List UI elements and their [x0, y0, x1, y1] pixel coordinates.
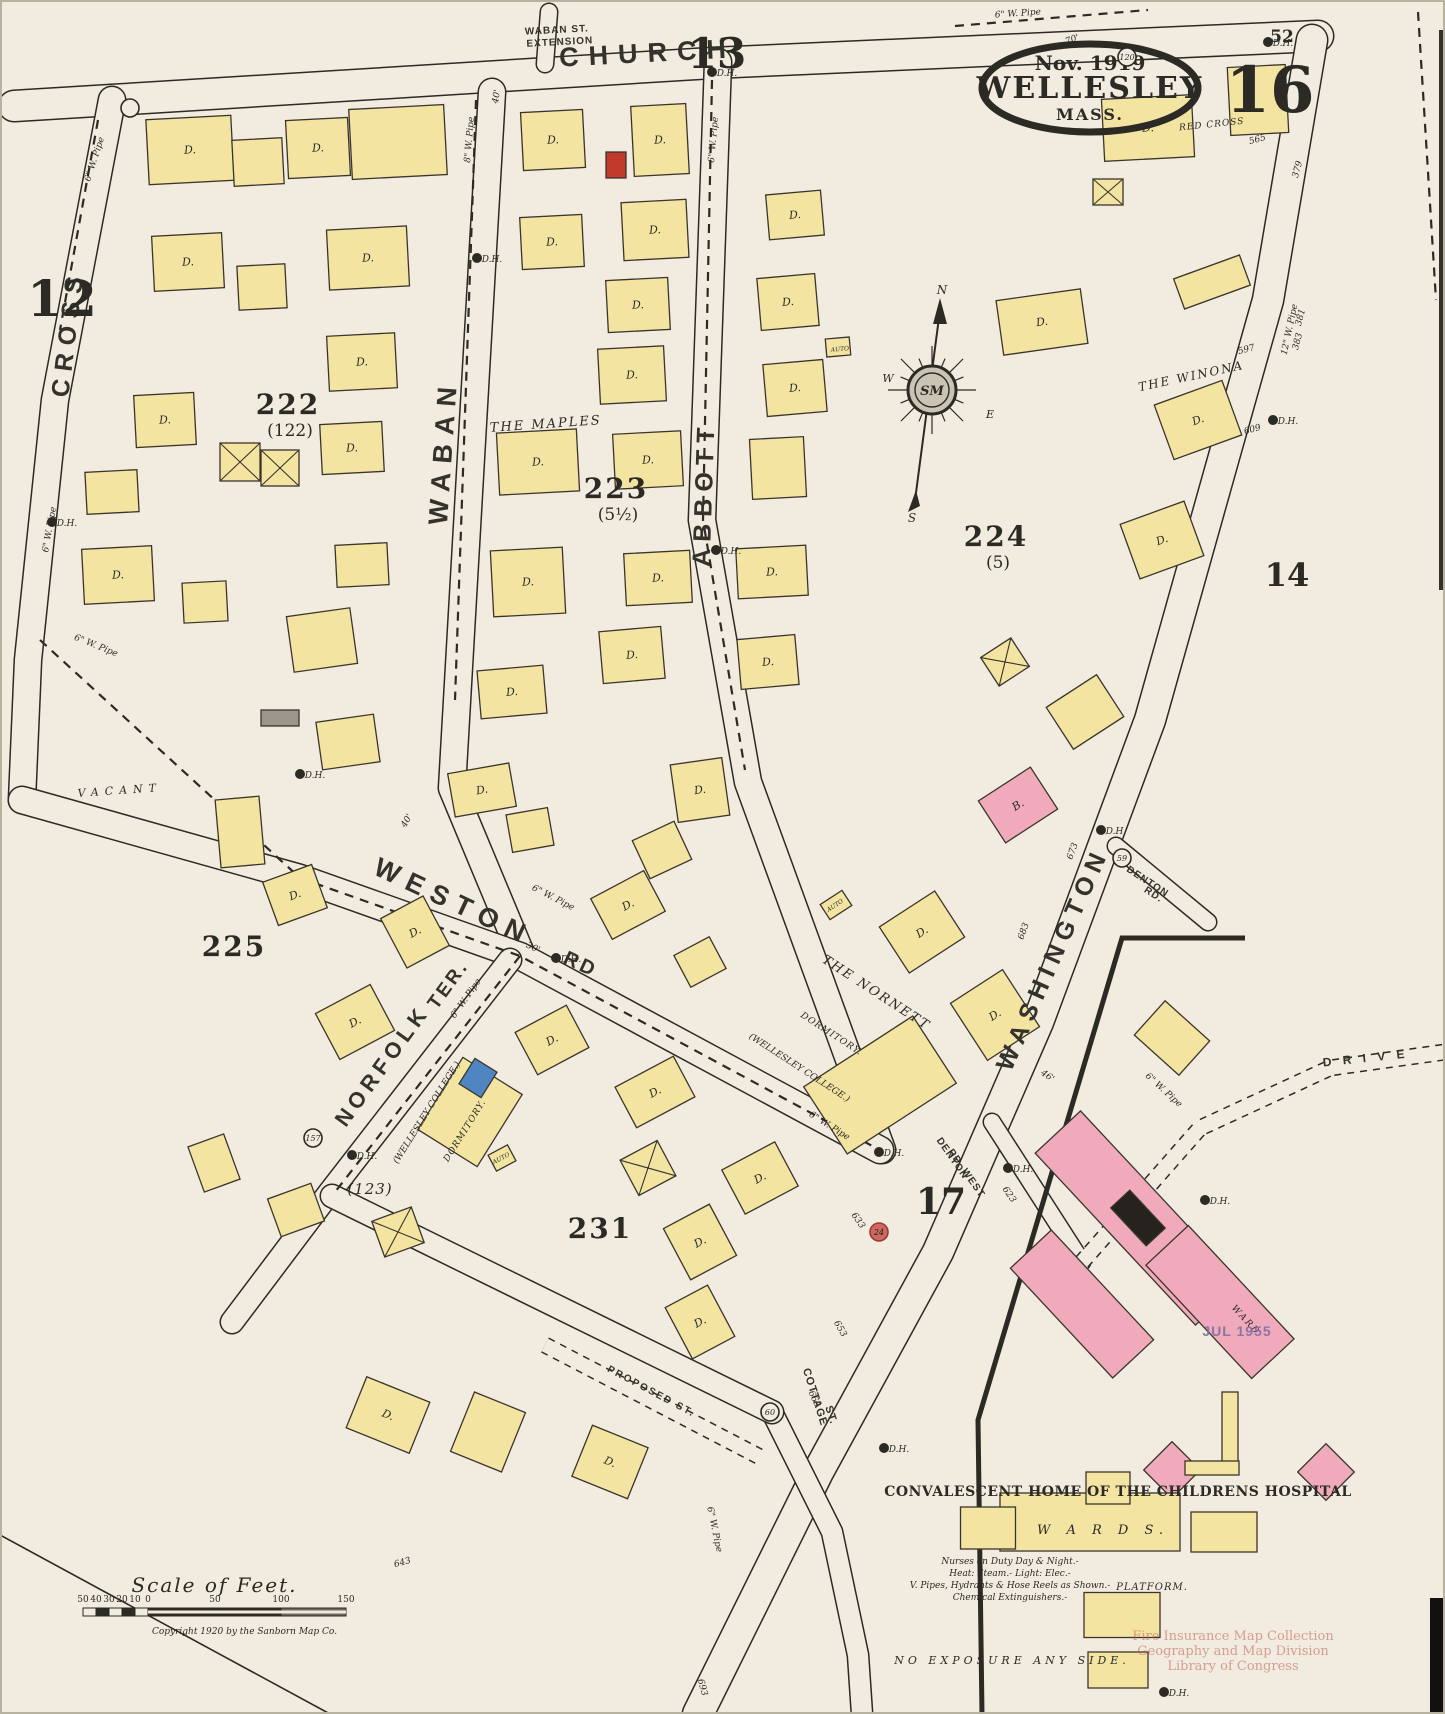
scale-midline [148, 1611, 346, 1614]
building: D. [606, 277, 671, 332]
double-hydrant-label: D.H. [1105, 827, 1127, 837]
block-number: 223 [584, 472, 648, 505]
building-footprint [1191, 1512, 1257, 1552]
building: D. [670, 758, 730, 823]
title-city: WELLESLEY [976, 71, 1204, 106]
scale-tick-label: 100 [272, 1595, 289, 1605]
building [261, 710, 299, 726]
double-hydrant-label: D.H. [481, 255, 503, 265]
building [1185, 1461, 1239, 1475]
building [286, 608, 357, 672]
building-use-label: D. [111, 568, 125, 582]
map-canvas: D.D.D.D.D.D.D.D.D.D.D.D.D.D.D.D.D.D.D.D.… [0, 0, 1445, 1714]
building-use-label: D. [631, 298, 645, 312]
building-footprint [349, 105, 448, 180]
building [1222, 1392, 1238, 1464]
block-number: 222 [256, 388, 320, 421]
building: D. [146, 115, 234, 184]
scale-segment [109, 1608, 122, 1616]
building-use-label: D. [625, 368, 639, 382]
double-hydrant-dot [1159, 1687, 1169, 1697]
building-footprint [286, 608, 357, 672]
pipe-junction-number: 60 [765, 1408, 775, 1417]
building: D. [996, 289, 1088, 355]
library-of-congress-stamp-line: Library of Congress [1167, 1659, 1298, 1674]
building: D. [766, 190, 825, 240]
scan-edge-black-bar [1430, 1598, 1445, 1714]
double-hydrant-label: D.H. [560, 955, 582, 965]
building [1191, 1512, 1257, 1552]
building: D. [327, 333, 398, 391]
block-number: 225 [202, 930, 266, 963]
building-use-label: D. [641, 453, 655, 467]
scale-segment [122, 1608, 135, 1616]
double-hydrant-dot [1263, 37, 1273, 47]
building: D. [520, 214, 585, 269]
title-cartouche: Nov. 1919WELLESLEYMASS. [976, 44, 1204, 132]
double-hydrant-label: D.H. [1277, 417, 1299, 427]
building-footprint [232, 138, 284, 187]
building-use-label: D. [158, 413, 172, 427]
building: D. [598, 346, 667, 404]
building: D. [621, 199, 689, 260]
double-hydrant-dot [1200, 1195, 1210, 1205]
building [215, 796, 265, 868]
scale-tick-label: 0 [145, 1595, 151, 1605]
double-hydrant-label: D.H. [888, 1445, 910, 1455]
double-hydrant-dot [711, 545, 721, 555]
date-received-stamp: JUL 1955 [1202, 1323, 1271, 1339]
building-use-label: D. [531, 455, 545, 469]
building: D. [631, 104, 690, 177]
double-hydrant-label: D.H. [1012, 1165, 1034, 1175]
building [349, 105, 448, 180]
scale-title: Scale of Feet. [131, 1573, 297, 1597]
building-use-label: D. [765, 565, 779, 579]
block-number: 224 [964, 520, 1028, 553]
building-footprint [606, 152, 626, 178]
building: D. [737, 635, 799, 690]
hospital-caption: CONVALESCENT HOME OF THE CHILDRENS HOSPI… [884, 1484, 1351, 1500]
building-footprint [215, 796, 265, 868]
scale-segment [83, 1608, 96, 1616]
building-footprint [85, 470, 139, 515]
building-use-label: D. [183, 143, 197, 157]
building-footprint [316, 714, 380, 770]
building-use-label: D. [624, 648, 638, 662]
building: D. [763, 359, 827, 416]
building-use-label: D. [355, 355, 369, 369]
building-footprint [182, 581, 228, 623]
compass-monogram: SM [920, 384, 944, 399]
double-hydrant-dot [1096, 825, 1106, 835]
pipe-junction-number: 157 [305, 1134, 321, 1143]
double-hydrant-label: D.H. [716, 69, 738, 79]
hospital-note-line: Nurses on Duty Day & Night.- [940, 1557, 1078, 1567]
building-use-label: D. [311, 141, 325, 155]
building-use-label: D. [345, 441, 359, 455]
sheet-number: 14 [1265, 556, 1310, 594]
building: D. [320, 421, 385, 474]
scale-segment [135, 1608, 148, 1616]
building [237, 264, 287, 310]
building-use-label: D. [181, 255, 195, 269]
block-sub-number: (122) [267, 421, 313, 441]
double-hydrant-label: D.H. [1209, 1197, 1231, 1207]
pipe-junction-circle [121, 99, 139, 117]
double-hydrant-dot [1003, 1163, 1013, 1173]
double-hydrant-label: D.H. [356, 1152, 378, 1162]
building: D. [496, 429, 579, 495]
platform-label: PLATFORM. [1115, 1582, 1188, 1593]
double-hydrant-label: D.H. [56, 519, 78, 529]
hospital-note-line: V. Pipes, Hydrants & Hose Reels as Shown… [910, 1581, 1111, 1591]
compass-east-letter: E [985, 408, 994, 421]
building: D. [757, 274, 819, 331]
building-use-label: D. [546, 133, 560, 147]
sheet-number: 16 [1225, 53, 1314, 128]
building-footprint [749, 437, 806, 500]
compass-north-letter: N [936, 283, 948, 297]
building-use-label: D. [521, 575, 535, 589]
building-use-label: D. [787, 381, 801, 395]
place-name: (123) [347, 1180, 392, 1198]
building [220, 443, 260, 481]
building-use-label: D. [474, 783, 489, 798]
building-footprint [335, 543, 389, 588]
building: D. [599, 626, 665, 683]
sheet-number: 17 [916, 1181, 966, 1223]
building [85, 470, 139, 515]
scale-tick-label: 30 [103, 1595, 115, 1605]
sheet-number: 12 [27, 269, 97, 328]
building: D. [82, 546, 155, 605]
pipe-junction-number: 59 [1117, 854, 1127, 863]
building-footprint [506, 808, 554, 853]
block-number: 231 [568, 1212, 632, 1245]
building [261, 450, 299, 486]
building-use-label: D. [545, 235, 559, 249]
building: D. [624, 550, 693, 605]
building [749, 437, 806, 500]
building-use-label: D. [653, 133, 667, 147]
building-use-label: D. [504, 685, 518, 699]
scale-tick-label: 50 [209, 1595, 221, 1605]
double-hydrant-label: D.H. [1168, 1689, 1190, 1699]
building-footprint [1185, 1461, 1239, 1475]
block-sub-number: (5½) [598, 505, 639, 525]
double-hydrant-dot [551, 953, 561, 963]
hospital-note-line: Chemical Extinguishers.- [953, 1593, 1068, 1603]
building [316, 714, 380, 770]
no-exposure-note: NO EXPOSURE ANY SIDE. [893, 1654, 1130, 1667]
building [606, 152, 626, 178]
double-hydrant-label: D.H. [883, 1149, 905, 1159]
building-use-label: D. [651, 571, 665, 585]
sanborn-map-sheet: D.D.D.D.D.D.D.D.D.D.D.D.D.D.D.D.D.D.D.D.… [0, 0, 1445, 1714]
building-footprint [237, 264, 287, 310]
building-footprint [1222, 1392, 1238, 1464]
building: D. [736, 545, 809, 599]
double-hydrant-dot [347, 1150, 357, 1160]
building: D. [521, 109, 586, 170]
wards-label: W A R D S. [1037, 1523, 1169, 1538]
building [182, 581, 228, 623]
scale-tick-label: 40 [90, 1595, 102, 1605]
double-hydrant-dot [874, 1147, 884, 1157]
double-hydrant-dot [707, 67, 717, 77]
double-hydrant-label: D.H. [720, 547, 742, 557]
building [335, 543, 389, 588]
title-state: MASS. [1056, 105, 1124, 124]
scale-tick-label: 50 [77, 1595, 89, 1605]
scale-segment [96, 1608, 109, 1616]
compass-west-letter: W [882, 372, 895, 385]
hospital-note-line: Heat: Steam.- Light: Elec.- [948, 1569, 1070, 1579]
building: D. [152, 233, 225, 292]
double-hydrant-label: D.H. [1272, 39, 1294, 49]
building-use-label: D. [1034, 315, 1049, 330]
building-use-label: D. [361, 251, 375, 265]
building [1093, 179, 1123, 205]
building-use-label: D. [787, 208, 801, 222]
scale-tick-label: 10 [129, 1595, 141, 1605]
building [506, 808, 554, 853]
double-hydrant-label: D.H. [304, 771, 326, 781]
double-hydrant-dot [295, 769, 305, 779]
library-of-congress-stamp-line: Geography and Map Division [1137, 1644, 1329, 1659]
block-sub-number: (5) [986, 553, 1010, 573]
pipe-junction-number: 120 [1119, 53, 1134, 62]
building-use-label: D. [648, 223, 662, 237]
building-use-label: D. [780, 295, 794, 309]
building-use-label: D. [692, 783, 707, 798]
building [232, 138, 284, 187]
double-hydrant-dot [1268, 415, 1278, 425]
building-use-label: D. [760, 655, 774, 669]
scale-tick-label: 150 [337, 1595, 354, 1605]
pipe-junction-number: 24 [873, 1228, 884, 1237]
library-of-congress-stamp-line: Fire Insurance Map Collection [1132, 1629, 1334, 1644]
compass-south-letter: S [908, 511, 916, 525]
double-hydrant-dot [879, 1443, 889, 1453]
building: D. [134, 392, 197, 447]
building: D. [326, 226, 409, 290]
building: D. [286, 117, 351, 178]
double-hydrant-dot [472, 253, 482, 263]
scale-tick-label: 20 [116, 1595, 128, 1605]
building [961, 1507, 1016, 1549]
copyright-line: Copyright 1920 by the Sanborn Map Co. [152, 1627, 337, 1637]
building: D. [490, 547, 565, 617]
building: D. [477, 665, 547, 719]
building-footprint [961, 1507, 1016, 1549]
building-footprint [261, 710, 299, 726]
